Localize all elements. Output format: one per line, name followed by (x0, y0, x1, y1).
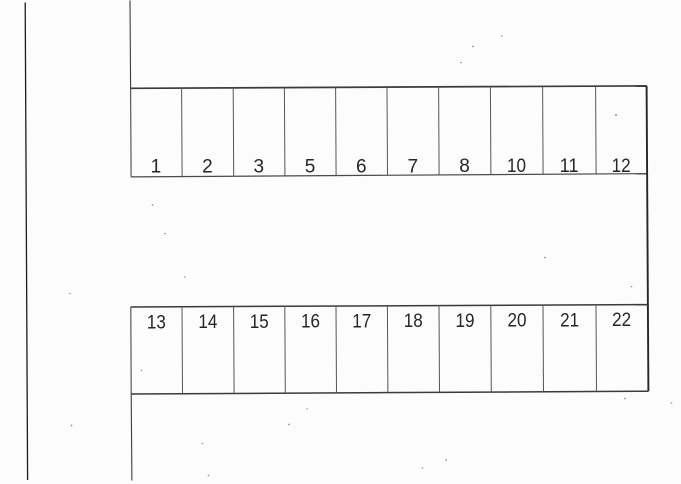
svg-text:10: 10 (507, 156, 526, 177)
svg-text:3: 3 (254, 156, 265, 177)
svg-text:13: 13 (147, 313, 166, 334)
svg-text:20: 20 (508, 311, 527, 332)
svg-text:18: 18 (404, 311, 423, 332)
svg-text:12: 12 (612, 156, 631, 177)
svg-text:21: 21 (560, 310, 579, 331)
svg-text:7: 7 (408, 156, 419, 177)
svg-text:15: 15 (250, 312, 269, 333)
svg-text:6: 6 (356, 156, 367, 177)
svg-text:2: 2 (202, 157, 213, 178)
svg-text:1: 1 (151, 157, 162, 178)
svg-text:11: 11 (560, 156, 579, 177)
svg-text:16: 16 (301, 312, 320, 333)
svg-text:8: 8 (459, 156, 470, 177)
svg-text:14: 14 (198, 312, 217, 333)
svg-text:5: 5 (305, 156, 316, 177)
svg-text:22: 22 (612, 310, 631, 331)
svg-text:19: 19 (456, 311, 475, 332)
svg-text:17: 17 (352, 311, 371, 332)
